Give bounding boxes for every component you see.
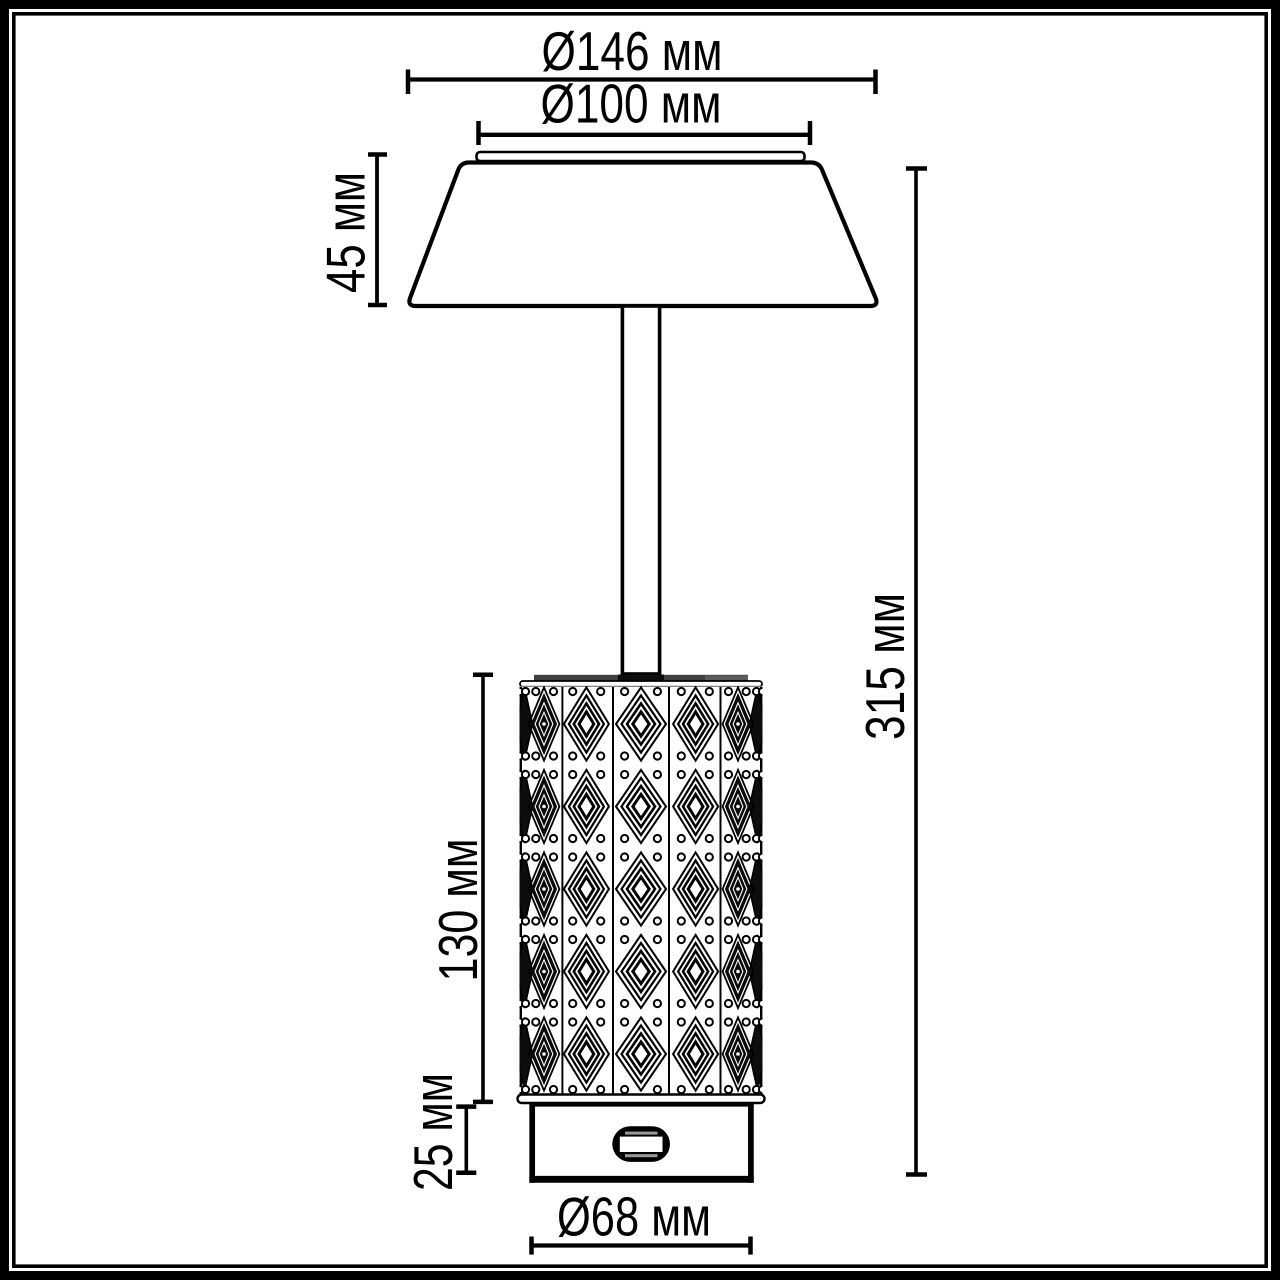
svg-text:25 мм: 25 мм (402, 1073, 464, 1191)
svg-text:Ø100 мм: Ø100 мм (541, 73, 722, 135)
svg-text:45 мм: 45 мм (315, 172, 377, 293)
svg-text:315 мм: 315 мм (854, 593, 916, 740)
svg-text:Ø68 мм: Ø68 мм (557, 1186, 711, 1248)
svg-text:130 мм: 130 мм (427, 839, 489, 982)
